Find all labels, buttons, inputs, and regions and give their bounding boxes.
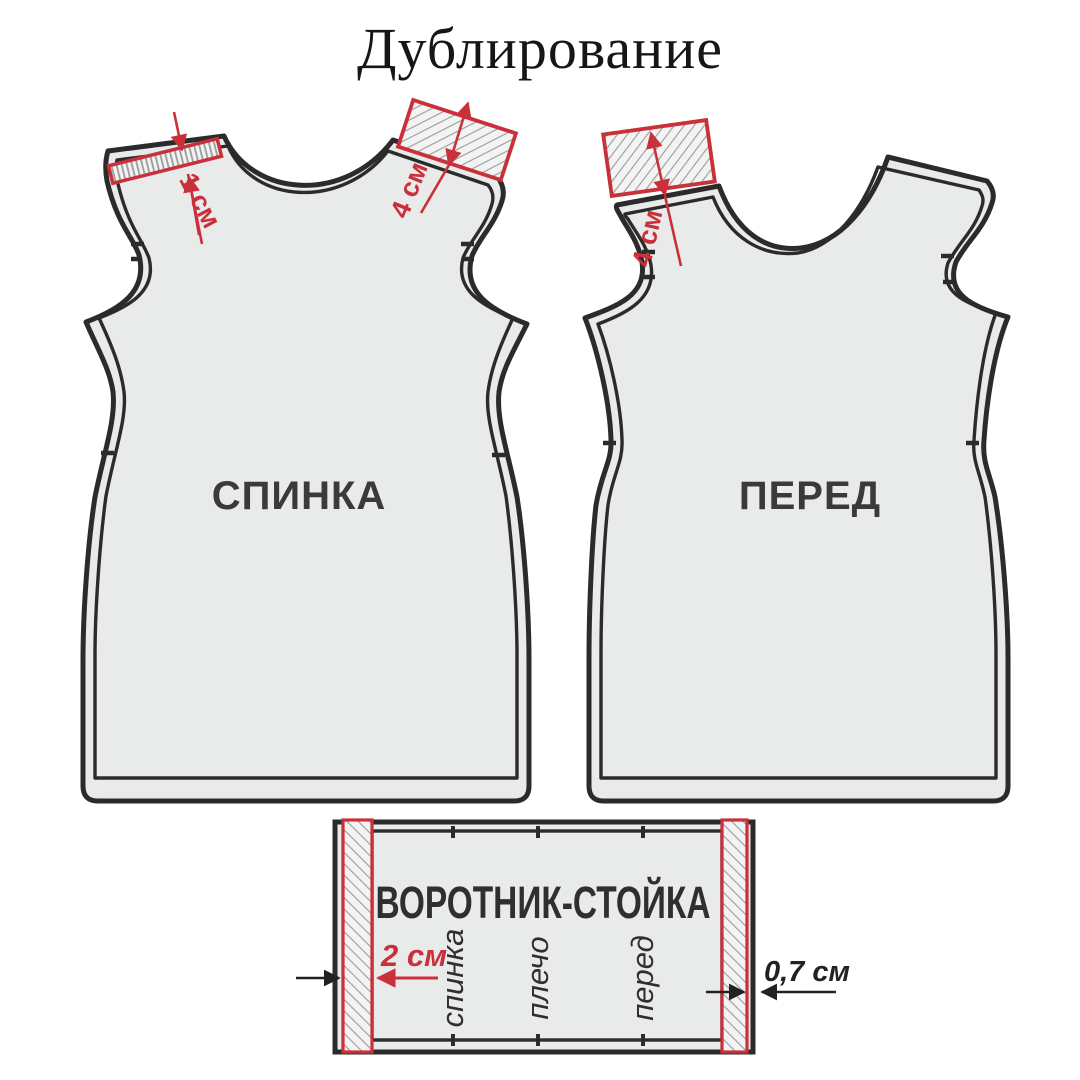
pattern-sheet: Дублирование СПИНКА 1 см 4 см [0, 0, 1080, 1080]
collar-right-edge-measure-label: 0,7 см [764, 956, 850, 988]
collar-left-interfacing-strip [343, 820, 372, 1052]
collar-piece: ВОРОТНИК-СТОЙКА спинка плечо перед 2 см … [296, 820, 850, 1052]
back-piece: СПИНКА [83, 136, 529, 801]
collar-match-label-front: перед [625, 935, 660, 1021]
page-title: Дублирование [357, 16, 723, 81]
back-cut-line [83, 136, 529, 801]
collar-right-interfacing-strip [722, 820, 747, 1052]
pattern-diagram: Дублирование СПИНКА 1 см 4 см [0, 0, 1080, 1080]
collar-label: ВОРОТНИК-СТОЙКА [376, 877, 711, 928]
collar-left-strip-measure-label: 2 см [380, 938, 447, 973]
front-piece-label: ПЕРЕД [739, 474, 881, 518]
collar-match-label-shoulder: плечо [520, 936, 555, 1019]
front-interfacing-patch [603, 120, 715, 196]
back-piece-label: СПИНКА [212, 474, 387, 518]
